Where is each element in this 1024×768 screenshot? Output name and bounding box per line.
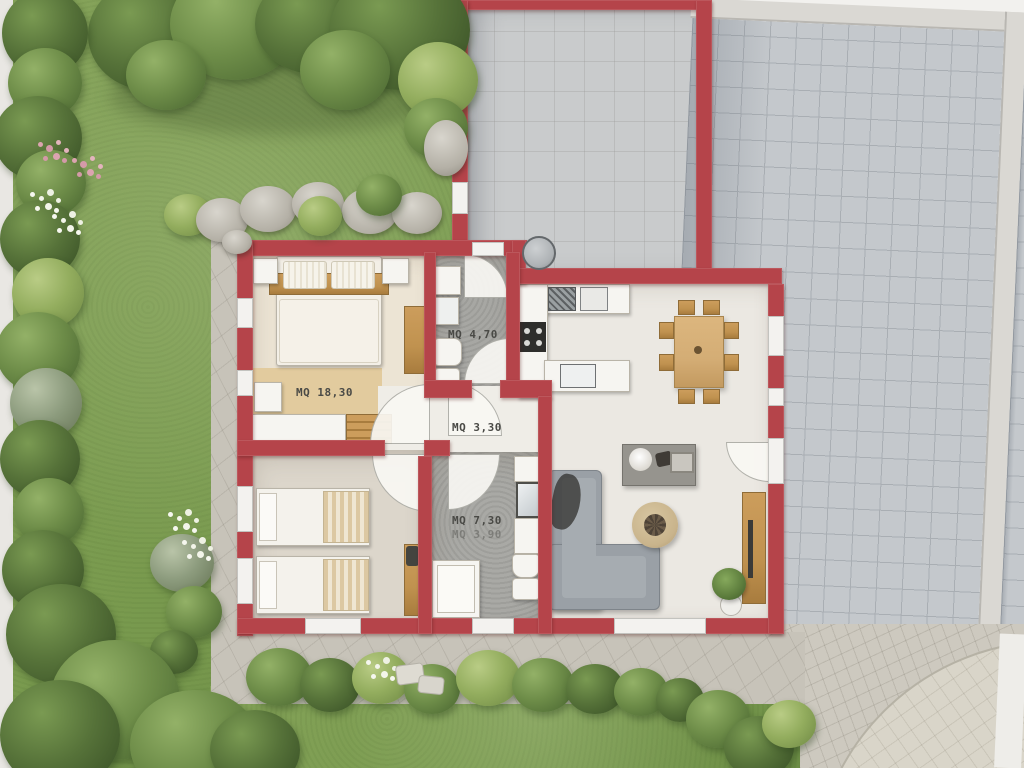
bed-head-panel xyxy=(259,561,277,609)
window-master-2 xyxy=(237,370,253,396)
window-bottom-living xyxy=(614,618,706,634)
garden-wall-top xyxy=(452,0,710,10)
wall-top-kitchen xyxy=(514,268,782,284)
dining-chair xyxy=(659,322,674,339)
wall-hall-corner xyxy=(424,440,450,456)
bush xyxy=(356,174,402,216)
floor-plan: MQ 18,30 MQ 4,70 MQ 3,30 MQ 7,30 MQ 3,90 xyxy=(0,0,1024,768)
dining-table-centerpiece xyxy=(694,346,702,354)
kitchen-sink xyxy=(560,364,596,388)
console-picture-frame xyxy=(670,452,694,473)
dining-chair xyxy=(703,389,720,404)
concrete-court xyxy=(464,0,704,272)
dining-chair xyxy=(724,354,739,371)
bush xyxy=(300,658,360,712)
white-flowers xyxy=(366,660,371,665)
white-corner xyxy=(994,633,1024,768)
wall-right xyxy=(768,284,784,634)
dining-chair xyxy=(678,389,695,404)
kitchen-counter-inset xyxy=(580,287,608,311)
bush xyxy=(126,40,206,110)
shower-inner xyxy=(437,565,475,613)
stove xyxy=(518,322,546,352)
nightstand-left xyxy=(253,258,278,284)
sofa-seat-cushions xyxy=(562,556,646,598)
bed-pillow-right xyxy=(331,261,375,289)
nightstand-right xyxy=(382,258,409,284)
bath-bidet xyxy=(512,578,540,600)
single-bed-2 xyxy=(256,556,370,614)
window-kitchen-east xyxy=(768,316,784,356)
dining-chair xyxy=(703,300,720,315)
white-flowers xyxy=(52,214,57,219)
boulder xyxy=(424,120,468,176)
label-master-bedroom: MQ 18,30 xyxy=(296,386,353,399)
wall-left xyxy=(237,240,253,636)
wall-living-bath xyxy=(538,396,552,634)
pink-flowers xyxy=(38,142,43,147)
pink-flowers xyxy=(72,158,77,163)
window-living-east xyxy=(768,388,784,406)
label-hallway: MQ 3,30 xyxy=(452,421,502,434)
bed-duvet xyxy=(279,299,379,363)
stone-path-left xyxy=(211,234,239,640)
door-mat-bathroom xyxy=(472,618,514,634)
shower xyxy=(432,560,480,618)
washing-machine xyxy=(432,266,461,295)
bush xyxy=(300,30,390,110)
bed-blanket-striped xyxy=(323,491,369,543)
bed-head-panel xyxy=(259,493,277,541)
label-bathroom-small: MQ 4,70 xyxy=(448,328,498,341)
single-bed-1 xyxy=(256,488,370,546)
boiler-column xyxy=(522,236,556,270)
wall-master-bath xyxy=(424,252,436,382)
window-bedroom2-1 xyxy=(237,486,253,532)
bush xyxy=(512,658,574,712)
wall-bottom xyxy=(237,618,782,634)
stepping-stone xyxy=(417,675,445,696)
bath-toilet xyxy=(512,554,540,578)
dining-chair xyxy=(659,354,674,371)
side-table xyxy=(254,382,282,412)
bed-blanket-striped xyxy=(323,559,369,611)
tv-screen xyxy=(748,520,753,578)
double-bed xyxy=(276,256,382,366)
window-bedroom2-2 xyxy=(237,558,253,604)
kitchen-dishrack xyxy=(548,287,576,311)
garden-wall-east xyxy=(696,0,712,272)
label-bathroom-main: MQ 7,30 xyxy=(452,514,502,527)
white-flowers xyxy=(182,540,187,545)
label-bathroom-main-ghost: MQ 3,90 xyxy=(452,528,502,541)
garden-gate-opening xyxy=(452,182,468,214)
bush xyxy=(298,196,342,236)
bush xyxy=(456,650,520,706)
coffee-table-bowl xyxy=(644,514,666,536)
wall-bath-bottom xyxy=(424,380,472,398)
boulder xyxy=(240,186,296,232)
wall-bedroom2-bath xyxy=(418,456,432,634)
wall-bath-kitchen xyxy=(506,252,520,382)
stove-burners xyxy=(524,328,530,334)
bath-small-sink xyxy=(432,297,459,325)
dining-chair xyxy=(678,300,695,315)
patio-door-opening xyxy=(768,438,784,484)
wall-top-bedroom xyxy=(237,240,527,256)
bed-pillow-left xyxy=(283,261,327,289)
window-master-1 xyxy=(237,298,253,328)
wall-bedrooms xyxy=(237,440,385,456)
console-rose-decor xyxy=(629,448,652,471)
dining-chair xyxy=(724,322,739,339)
boulder xyxy=(222,230,252,254)
potted-plant xyxy=(712,568,746,600)
window-bottom-bedroom2 xyxy=(305,618,361,634)
bath-small-toilet xyxy=(434,338,462,366)
white-flowers xyxy=(30,192,35,197)
entry-mat xyxy=(472,242,504,256)
bush xyxy=(762,700,816,748)
white-flowers xyxy=(168,512,173,517)
